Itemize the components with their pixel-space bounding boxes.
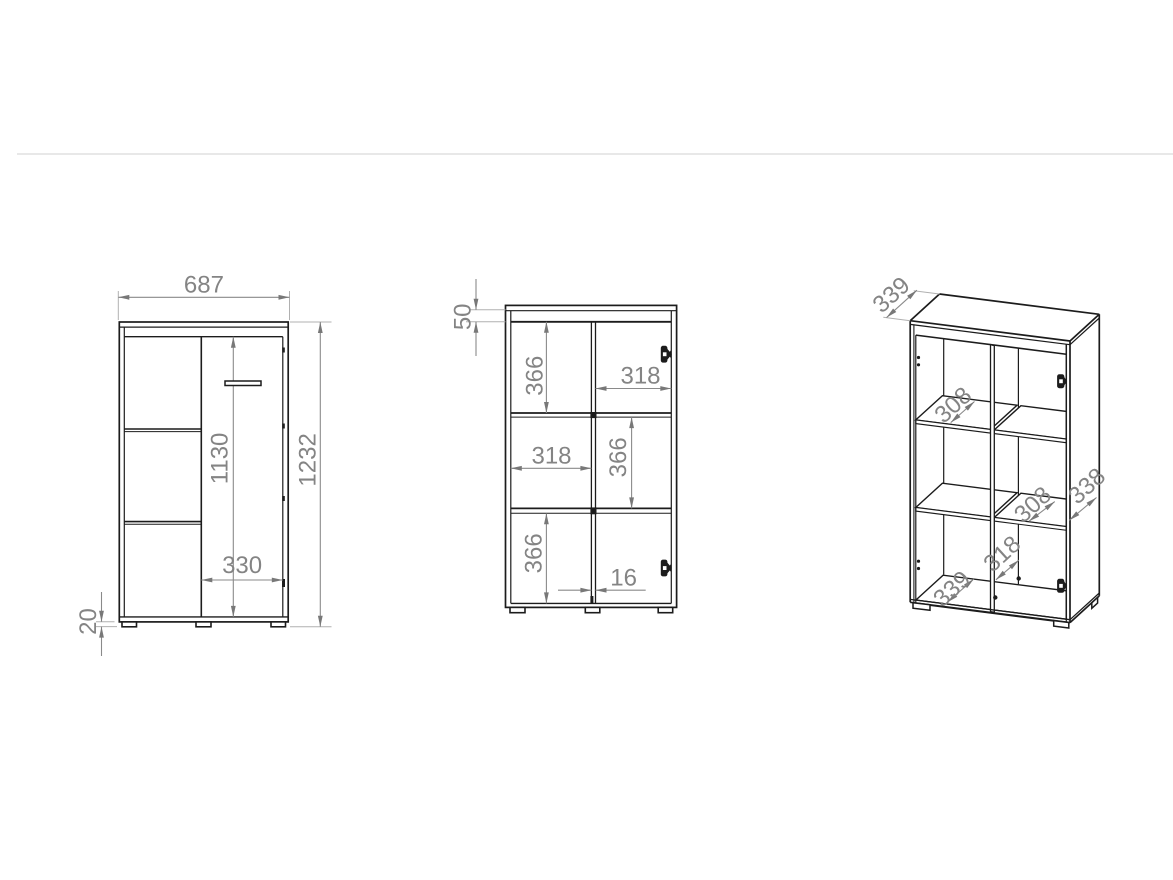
svg-text:50: 50 xyxy=(450,303,477,330)
svg-text:1130: 1130 xyxy=(207,433,234,485)
svg-text:366: 366 xyxy=(522,356,549,396)
svg-text:687: 687 xyxy=(184,272,224,299)
svg-text:330: 330 xyxy=(222,552,262,579)
svg-text:1232: 1232 xyxy=(295,433,322,486)
svg-text:366: 366 xyxy=(521,533,548,573)
svg-text:318: 318 xyxy=(620,362,660,389)
svg-text:366: 366 xyxy=(605,437,632,477)
svg-text:16: 16 xyxy=(610,565,637,592)
svg-text:20: 20 xyxy=(75,608,102,635)
svg-text:318: 318 xyxy=(531,442,571,469)
